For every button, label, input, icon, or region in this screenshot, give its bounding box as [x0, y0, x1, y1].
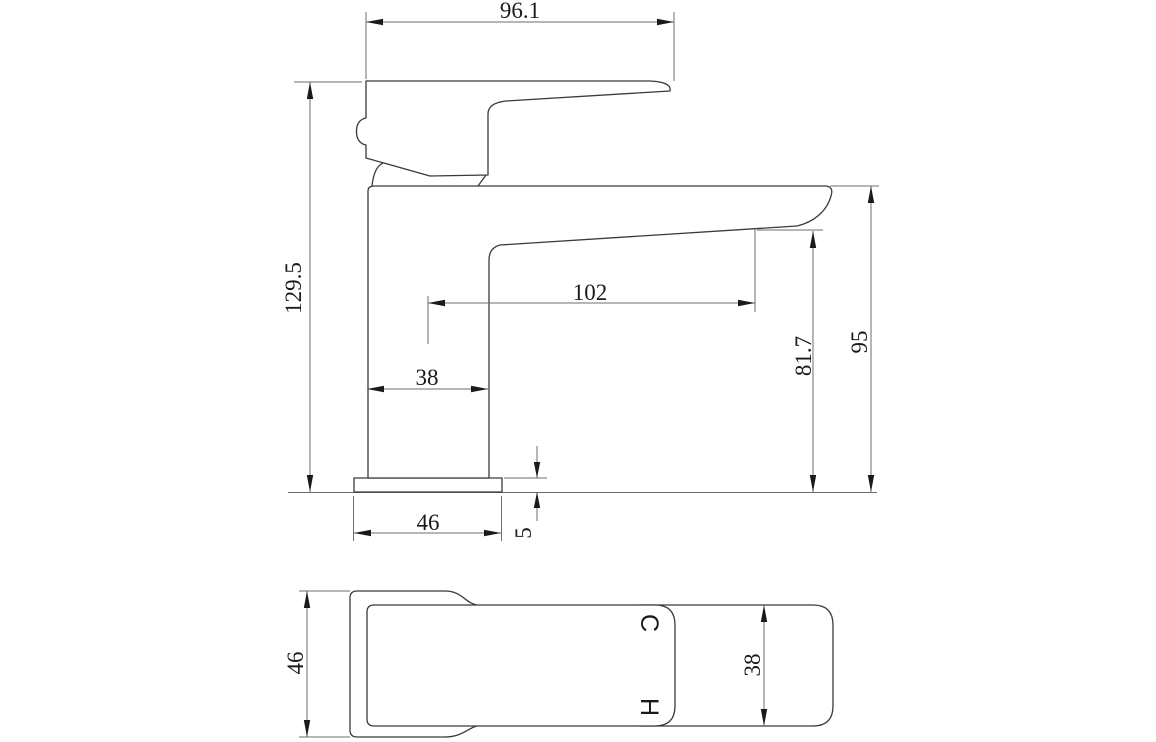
- base-plate-side: [354, 478, 502, 492]
- dim-spout-width-label: 38: [740, 654, 765, 677]
- top-view: C H 46 38: [283, 591, 833, 737]
- dim-base-thickness-arrows: [534, 462, 540, 508]
- dim-overall-height: 129.5: [281, 82, 362, 492]
- dim-base-depth-label: 46: [283, 652, 308, 675]
- faucet-technical-drawing-page: 96.1 129.5 102 38 81.7: [0, 0, 1156, 742]
- handle-plan: [367, 605, 675, 726]
- dome-left-curve: [372, 163, 383, 186]
- dim-overall-height-label: 129.5: [281, 262, 306, 314]
- dim-outlet-height-label: 81.7: [791, 336, 816, 376]
- dim-spout-top-height-label: 95: [847, 331, 872, 354]
- hot-marking-label: H: [635, 698, 663, 716]
- cold-marking-label: C: [635, 614, 663, 632]
- dim-handle-length-label: 96.1: [500, 0, 540, 23]
- dim-base-width: 46: [354, 496, 502, 541]
- faucet-technical-drawing: 96.1 129.5 102 38 81.7: [0, 0, 1156, 742]
- dim-spout-reach-label: 102: [573, 280, 608, 305]
- dome-right-edge: [478, 175, 486, 186]
- dim-base-width-label: 46: [417, 510, 440, 535]
- dim-handle-length: 96.1: [366, 0, 674, 81]
- side-view: 96.1 129.5 102 38 81.7: [281, 0, 879, 541]
- dim-body-width-label: 38: [416, 365, 439, 390]
- dim-spout-top-height: 95: [830, 186, 879, 492]
- handle-lever-outline: [357, 81, 671, 176]
- dim-outlet-height: 81.7: [757, 230, 823, 492]
- dim-base-thickness-label: 5: [511, 527, 536, 539]
- dim-base-depth: 46: [283, 591, 350, 737]
